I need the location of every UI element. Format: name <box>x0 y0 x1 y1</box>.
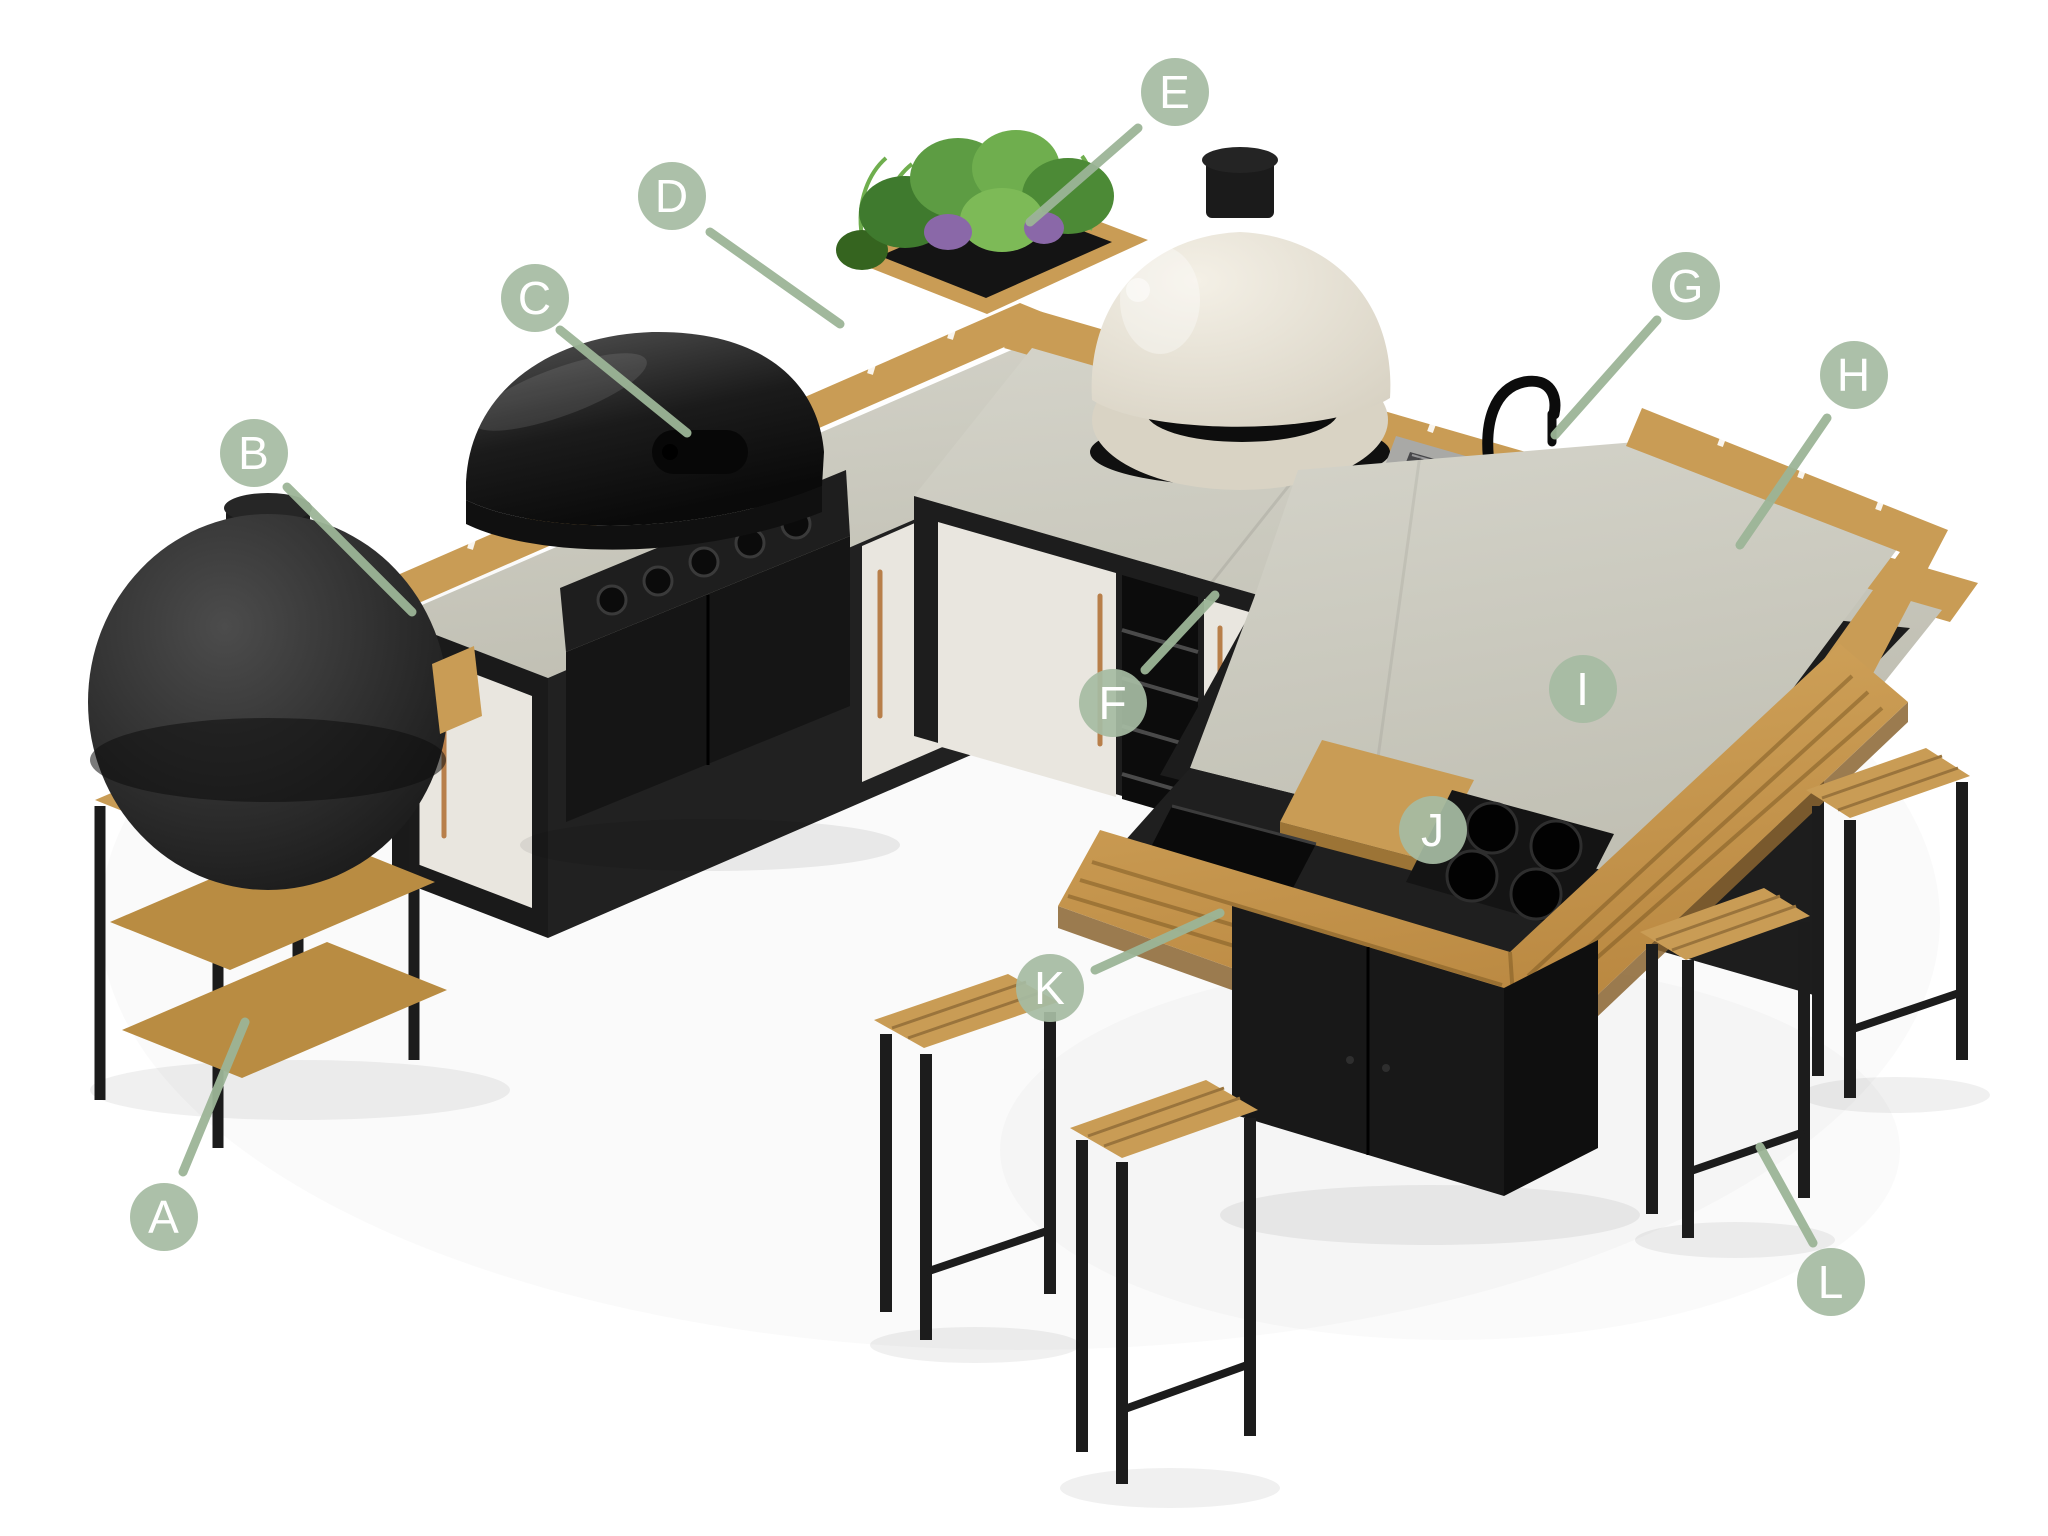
hotspot-H-corner-worktop[interactable]: H <box>1820 341 1888 409</box>
leader-line-K <box>1095 913 1220 970</box>
hotspot-G-sink-and-tap[interactable]: G <box>1652 252 1720 320</box>
hotspot-E-herb-planter[interactable]: E <box>1141 58 1209 126</box>
leader-line-L <box>1760 1147 1813 1243</box>
hotspot-A-side-shelf-table[interactable]: A <box>130 1183 198 1251</box>
hotspot-F-sliding-door-cabinet[interactable]: F <box>1079 669 1147 737</box>
leader-line-B <box>287 487 412 612</box>
hotspot-C-gas-grill[interactable]: C <box>501 264 569 332</box>
leader-line-E <box>1030 128 1138 222</box>
hotspot-D-worktop-section[interactable]: D <box>638 162 706 230</box>
hotspot-B-storage-cabinet[interactable]: B <box>220 419 288 487</box>
leader-line-F <box>1145 595 1215 670</box>
leader-line-G <box>1555 320 1657 435</box>
leader-line-layer <box>0 0 2048 1536</box>
hotspot-I-worktop[interactable]: I <box>1549 655 1617 723</box>
hotspot-K-bar-table[interactable]: K <box>1016 954 1084 1022</box>
outdoor-kitchen-diagram: ABCDEFGHIJKL <box>0 0 2048 1536</box>
hotspot-J-drinks-cooler-insert[interactable]: J <box>1399 796 1467 864</box>
leader-line-H <box>1740 418 1827 545</box>
hotspot-L-bar-stool[interactable]: L <box>1797 1248 1865 1316</box>
leader-line-C <box>560 330 687 433</box>
leader-line-D <box>710 232 840 324</box>
leader-line-A <box>183 1022 245 1172</box>
